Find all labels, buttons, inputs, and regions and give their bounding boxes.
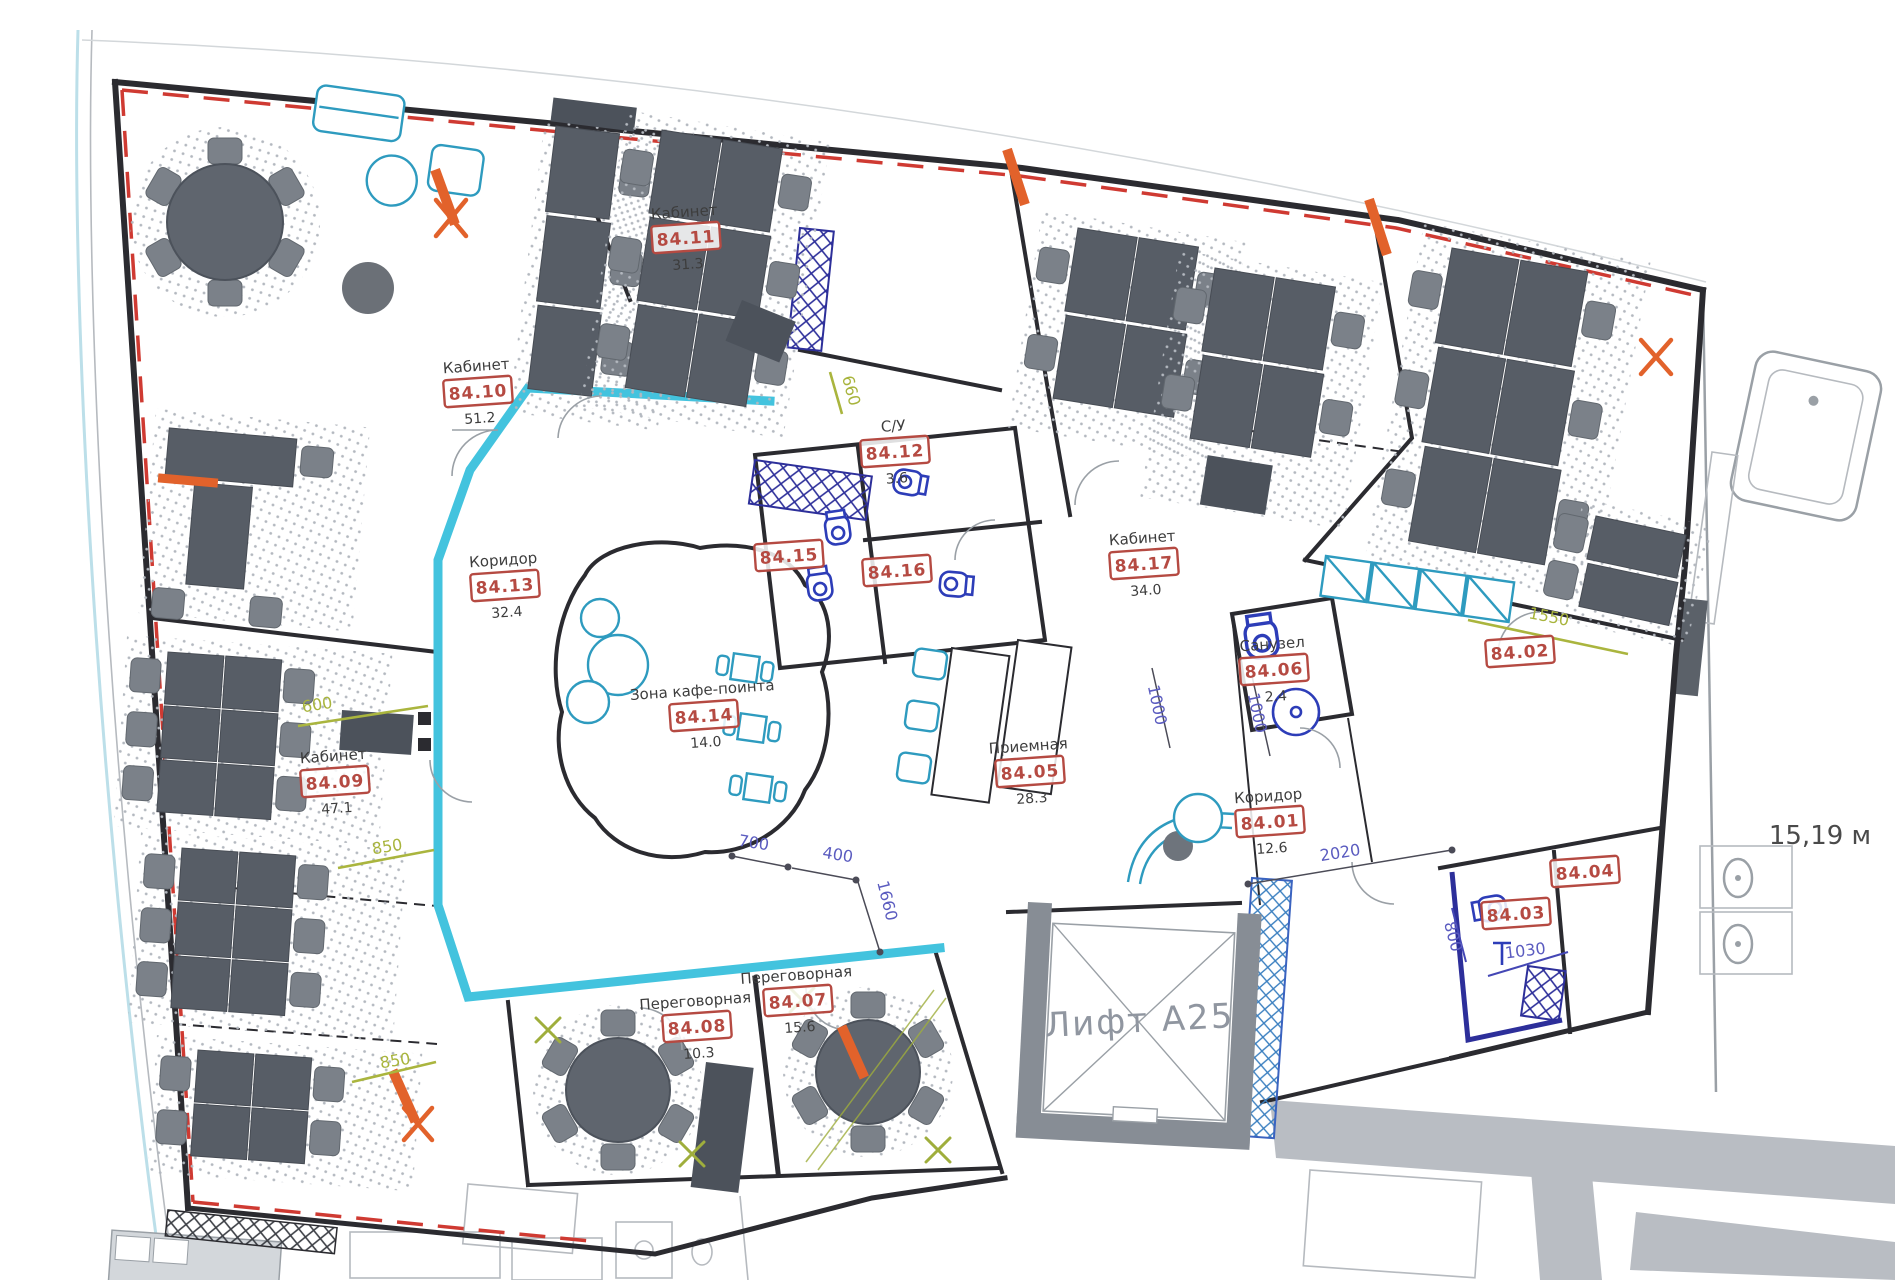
svg-text:84.15: 84.15 [759, 545, 819, 569]
svg-text:84.09: 84.09 [305, 771, 365, 795]
svg-text:84.03: 84.03 [1486, 903, 1546, 927]
neighbor-toilet-icon [1724, 859, 1752, 963]
svg-text:15.6: 15.6 [784, 1019, 816, 1037]
svg-text:84.01: 84.01 [1240, 811, 1300, 835]
desk-group-8410 [138, 409, 370, 635]
desk-cluster-8417-b [1140, 250, 1383, 529]
svg-text:84.12: 84.12 [865, 441, 925, 465]
room-number: 84.11 [656, 227, 716, 251]
svg-text:34.0: 34.0 [1130, 582, 1162, 600]
svg-text:84.14: 84.14 [674, 705, 734, 729]
room-label-84-04: 84.04 [1550, 856, 1620, 888]
svg-text:84.13: 84.13 [475, 575, 535, 599]
svg-text:32.4: 32.4 [491, 604, 523, 622]
svg-text:84.04: 84.04 [1555, 861, 1615, 885]
floor-plan-page: Лифт А25 700 400 1660 2020 1000 1000 800… [0, 0, 1895, 1280]
svg-text:84.07: 84.07 [768, 990, 828, 1014]
svg-text:84.02: 84.02 [1490, 641, 1550, 665]
svg-text:28.3: 28.3 [1016, 790, 1048, 808]
svg-text:84.06: 84.06 [1244, 659, 1304, 683]
floor-plan-canvas: Лифт А25 700 400 1660 2020 1000 1000 800… [0, 0, 1895, 1280]
room-area: 31.3 [672, 256, 704, 274]
bathtub-icon [1728, 348, 1885, 523]
svg-text:С/У: С/У [880, 416, 906, 436]
room-label-84-03: 84.03 [1481, 898, 1551, 930]
svg-text:3.6: 3.6 [885, 470, 908, 488]
pouf [342, 262, 394, 314]
svg-text:84.08: 84.08 [667, 1016, 727, 1040]
room-label-84-15: 84.15 [754, 540, 824, 572]
svg-text:84.16: 84.16 [867, 560, 927, 584]
svg-text:14.0: 14.0 [690, 734, 722, 752]
svg-text:12.6: 12.6 [1256, 840, 1288, 858]
round-table-topleft [130, 127, 320, 317]
svg-text:2.4: 2.4 [1264, 688, 1287, 706]
svg-text:51.2: 51.2 [464, 410, 496, 428]
svg-text:84.17: 84.17 [1114, 553, 1174, 577]
room-label-84-16: 84.16 [862, 555, 932, 587]
room-label-84-02: 84.02 [1485, 636, 1555, 668]
svg-text:84.05: 84.05 [1000, 761, 1060, 785]
svg-text:10.3: 10.3 [683, 1045, 715, 1063]
svg-text:84.10: 84.10 [448, 381, 508, 405]
svg-text:47.1: 47.1 [321, 800, 353, 818]
width-note: 15,19 м [1769, 821, 1871, 851]
